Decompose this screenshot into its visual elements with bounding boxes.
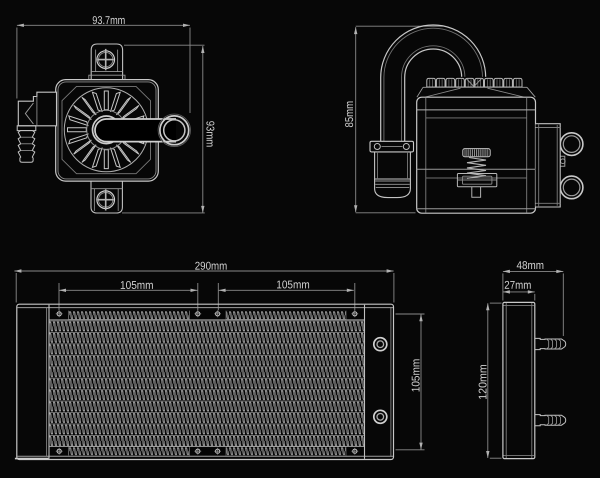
svg-text:48mm: 48mm	[517, 260, 545, 272]
svg-text:290mm: 290mm	[195, 261, 228, 273]
svg-text:85mm: 85mm	[344, 101, 356, 128]
svg-text:105mm: 105mm	[120, 280, 154, 292]
svg-text:27mm: 27mm	[504, 280, 531, 292]
svg-text:120mm: 120mm	[477, 364, 489, 400]
svg-text:105mm: 105mm	[410, 359, 422, 393]
svg-text:93.7mm: 93.7mm	[92, 15, 125, 27]
svg-text:105mm: 105mm	[276, 279, 310, 291]
svg-text:93mm: 93mm	[204, 121, 216, 148]
